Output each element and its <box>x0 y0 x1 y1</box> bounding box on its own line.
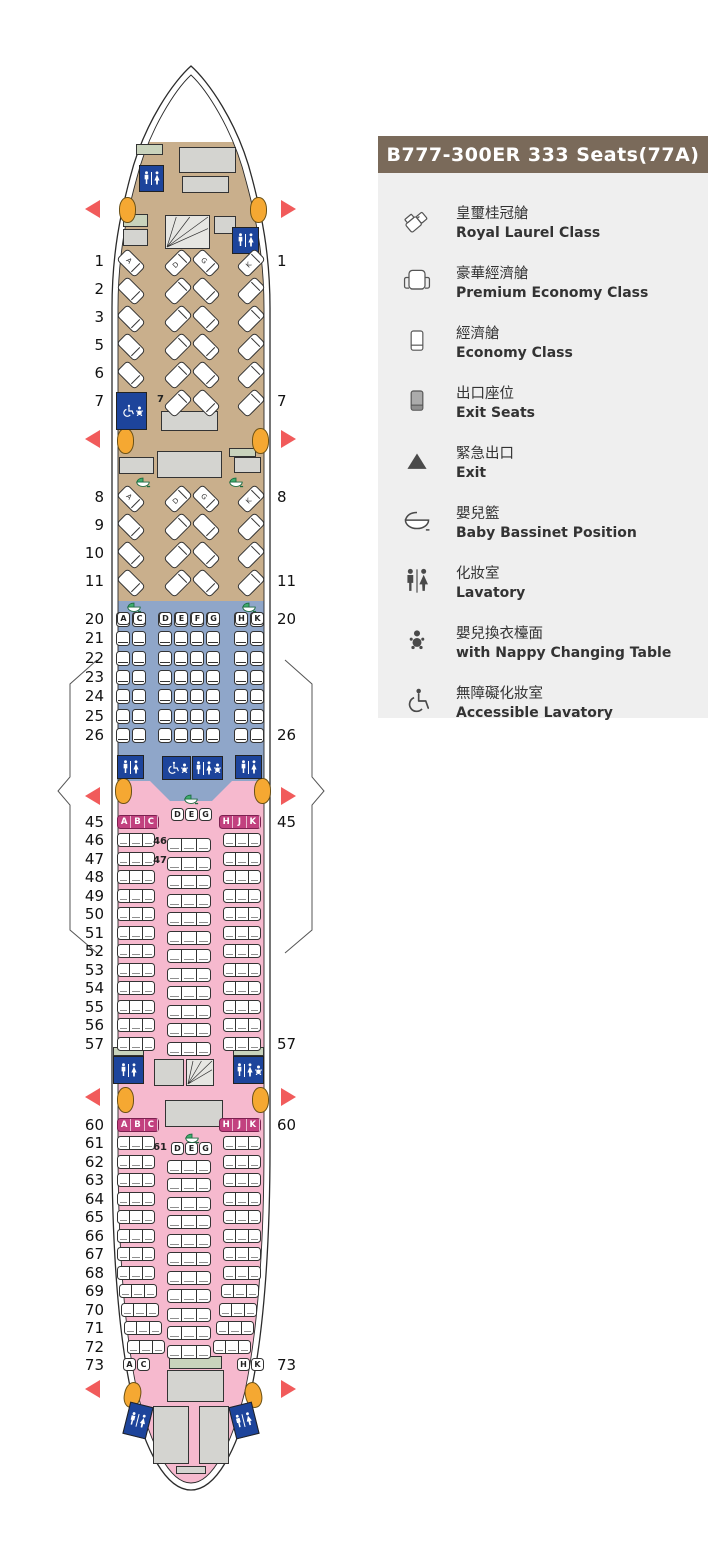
exit-door-right <box>252 1087 269 1113</box>
seat <box>234 689 248 704</box>
row-number-left: 54 <box>58 980 104 996</box>
seat <box>223 1000 261 1014</box>
galley-block <box>234 457 261 473</box>
exit-triangle-left-icon <box>85 1380 100 1398</box>
seat <box>190 631 204 646</box>
row-number-left: 22 <box>58 650 104 666</box>
seat-letter-box: F <box>191 612 204 625</box>
row-number-left: 55 <box>58 999 104 1015</box>
seat <box>213 1340 251 1354</box>
galley-block <box>119 457 154 474</box>
galley-block <box>165 1100 223 1127</box>
seat <box>132 651 146 666</box>
exit-door-right <box>254 778 271 804</box>
exit-triangle-left-icon <box>85 787 100 805</box>
seat-letter-box: K <box>251 1358 264 1371</box>
baby-bassinet-icon <box>183 791 199 810</box>
row-number-left: 20 <box>58 611 104 627</box>
row-number-left: 21 <box>58 630 104 646</box>
seat <box>116 651 130 666</box>
row-number-left: 67 <box>58 1246 104 1262</box>
lavatory-icon <box>117 755 144 779</box>
seat <box>116 689 130 704</box>
seat-letter-box: A <box>123 1358 136 1371</box>
seat <box>174 670 188 685</box>
seat <box>221 1284 259 1298</box>
stairs-icon <box>186 1059 214 1086</box>
seat-letter: D <box>171 496 180 505</box>
seat <box>206 631 220 646</box>
seat <box>167 857 211 871</box>
seat <box>206 670 220 685</box>
seat <box>223 944 261 958</box>
row-number-left: 57 <box>58 1036 104 1052</box>
baby-bassinet-icon <box>184 1130 200 1149</box>
seat-letter: K <box>244 261 253 270</box>
seat <box>223 1247 261 1261</box>
seat <box>158 631 172 646</box>
seat-map-page: B777-300ER 333 Seats(77A) 皇璽桂冠艙Royal Lau… <box>0 0 720 1550</box>
seat <box>167 1345 211 1359</box>
row-number-right: 60 <box>277 1117 323 1133</box>
exit-triangle-right-icon <box>281 200 296 218</box>
seat <box>167 894 211 908</box>
seat <box>234 631 248 646</box>
galley-block <box>157 451 222 478</box>
seat <box>117 926 155 940</box>
seat-letter: C <box>145 816 158 828</box>
seat-letter: J <box>233 816 246 828</box>
seat <box>174 631 188 646</box>
seat-letter: G <box>199 492 209 502</box>
exit-door-right <box>252 428 269 454</box>
lavatory-icon <box>233 1056 264 1084</box>
row-number-left: 10 <box>58 545 104 561</box>
seat-letter: D <box>171 260 180 269</box>
seat <box>250 709 264 724</box>
exit-triangle-right-icon <box>281 787 296 805</box>
seat <box>190 728 204 743</box>
seat <box>223 1192 261 1206</box>
seat <box>234 670 248 685</box>
row-number-right: 26 <box>277 727 323 743</box>
seat <box>219 1303 257 1317</box>
row-number-left: 60 <box>58 1117 104 1133</box>
seat-letter: A <box>118 816 131 828</box>
row-number-left: 46 <box>58 832 104 848</box>
row-number-left: 62 <box>58 1154 104 1170</box>
row-number-left: 2 <box>58 281 104 297</box>
galley-block <box>123 229 148 246</box>
seat <box>117 1037 155 1051</box>
inline-row-label: 46 <box>141 836 167 848</box>
seat-letter: K <box>244 497 253 506</box>
seat <box>167 1160 211 1174</box>
row-number-left: 52 <box>58 943 104 959</box>
seat <box>117 1266 155 1280</box>
row-number-left: 63 <box>58 1172 104 1188</box>
exit-row-seat: ABC <box>117 815 159 829</box>
exit-triangle-right-icon <box>281 430 296 448</box>
row-number-left: 45 <box>58 814 104 830</box>
seat-letter: K <box>247 1119 260 1131</box>
seat <box>190 689 204 704</box>
inline-row-label: 47 <box>141 855 167 867</box>
row-number-left: 48 <box>58 869 104 885</box>
seat-letter: C <box>145 1119 158 1131</box>
seat-letter: H <box>220 1119 233 1131</box>
row-number-right: 45 <box>277 814 323 830</box>
row-number-left: 23 <box>58 669 104 685</box>
seat-letter: B <box>131 1119 144 1131</box>
seat <box>223 1173 261 1187</box>
row-number-left: 24 <box>58 688 104 704</box>
seat <box>121 1303 159 1317</box>
seat-letter-box: E <box>175 612 188 625</box>
seat <box>190 651 204 666</box>
seat <box>167 1215 211 1229</box>
seat <box>206 709 220 724</box>
row-number-left: 26 <box>58 727 104 743</box>
wing-line-right <box>285 660 324 953</box>
seat <box>250 651 264 666</box>
seat <box>223 1155 261 1169</box>
galley-block <box>176 1466 206 1474</box>
seat <box>250 631 264 646</box>
seat <box>167 1234 211 1248</box>
seat <box>223 1210 261 1224</box>
seat <box>158 709 172 724</box>
seat <box>158 651 172 666</box>
row-number-left: 64 <box>58 1191 104 1207</box>
seat-letter-box: G <box>199 808 212 821</box>
galley-block <box>136 144 163 155</box>
seat <box>250 689 264 704</box>
seat <box>174 689 188 704</box>
exit-triangle-right-icon <box>281 1380 296 1398</box>
row-number-left: 6 <box>58 365 104 381</box>
baby-bassinet-icon <box>228 474 244 493</box>
seat <box>116 728 130 743</box>
row-number-left: 61 <box>58 1135 104 1151</box>
seat-letter-box: D <box>159 612 172 625</box>
seat <box>167 1023 211 1037</box>
seat <box>117 1173 155 1187</box>
exit-row-seat: HJK <box>219 815 261 829</box>
exit-row-seat: ABC <box>117 1118 159 1132</box>
seat-letter: A <box>124 492 133 501</box>
seat-letter: A <box>118 1119 131 1131</box>
seat <box>167 1326 211 1340</box>
seat <box>223 1266 261 1280</box>
row-number-right: 11 <box>277 573 323 589</box>
exit-row-seat: HJK <box>219 1118 261 1132</box>
seat <box>234 709 248 724</box>
seat <box>223 907 261 921</box>
seat <box>117 907 155 921</box>
seat <box>206 651 220 666</box>
row-number-left: 71 <box>58 1320 104 1336</box>
row-number-left: 66 <box>58 1228 104 1244</box>
seat-letter-box: C <box>137 1358 150 1371</box>
exit-door-left <box>115 778 132 804</box>
seat <box>167 1271 211 1285</box>
row-number-left: 8 <box>58 489 104 505</box>
inline-row-label: 61 <box>141 1142 167 1154</box>
seat <box>117 981 155 995</box>
row-number-right: 20 <box>277 611 323 627</box>
seat <box>234 651 248 666</box>
row-number-left: 70 <box>58 1302 104 1318</box>
seat <box>132 670 146 685</box>
baby-bassinet-icon <box>135 474 151 493</box>
seat <box>223 963 261 977</box>
seat <box>167 1289 211 1303</box>
seat-letter: K <box>247 816 260 828</box>
seat <box>167 1178 211 1192</box>
galley-block <box>167 1370 224 1402</box>
seat <box>158 689 172 704</box>
seat <box>117 1247 155 1261</box>
galley-block <box>153 1406 189 1464</box>
seat-letter-box: G <box>199 1142 212 1155</box>
seat <box>174 651 188 666</box>
galley-block <box>154 1059 184 1086</box>
seat <box>223 926 261 940</box>
row-number-left: 50 <box>58 906 104 922</box>
seat-letter-box: H <box>237 1358 250 1371</box>
galley-block <box>229 448 256 457</box>
exit-door-left <box>117 428 134 454</box>
row-number-left: 56 <box>58 1017 104 1033</box>
exit-triangle-left-icon <box>85 1088 100 1106</box>
row-number-left: 25 <box>58 708 104 724</box>
lavatory-icon <box>192 756 223 780</box>
seat <box>132 689 146 704</box>
lavatory-icon <box>113 1056 144 1084</box>
baby-bassinet-icon <box>126 599 142 618</box>
seat <box>167 968 211 982</box>
fuselage-outline <box>0 0 720 1550</box>
seat <box>223 870 261 884</box>
baby-bassinet-icon <box>241 599 257 618</box>
row-number-left: 65 <box>58 1209 104 1225</box>
seat <box>223 981 261 995</box>
seat <box>116 709 130 724</box>
exit-triangle-left-icon <box>85 200 100 218</box>
seat <box>124 1321 162 1335</box>
seat <box>116 631 130 646</box>
seat <box>167 1308 211 1322</box>
seat <box>117 889 155 903</box>
stairs-icon <box>165 215 210 249</box>
lavatory-icon <box>139 165 164 192</box>
seat <box>158 728 172 743</box>
seat <box>117 944 155 958</box>
seat <box>117 1018 155 1032</box>
seat <box>167 875 211 889</box>
seat <box>127 1340 165 1354</box>
seat <box>167 912 211 926</box>
exit-door-right <box>250 197 267 223</box>
seat <box>167 1252 211 1266</box>
seat <box>216 1321 254 1335</box>
seat <box>174 709 188 724</box>
seat-letter-box: G <box>207 612 220 625</box>
row-number-left: 51 <box>58 925 104 941</box>
seat <box>117 870 155 884</box>
row-number-left: 7 <box>58 393 104 409</box>
accessible-lavatory-icon <box>162 756 191 780</box>
seat <box>117 1229 155 1243</box>
seat <box>117 1210 155 1224</box>
seat <box>174 728 188 743</box>
row-7-inline-label: 7 <box>138 394 164 406</box>
seat <box>234 728 248 743</box>
seat <box>223 1136 261 1150</box>
lavatory-icon <box>235 755 262 779</box>
seat <box>190 670 204 685</box>
galley-block <box>182 176 229 193</box>
seat-letter: J <box>233 1119 246 1131</box>
seat <box>167 1005 211 1019</box>
row-number-left: 49 <box>58 888 104 904</box>
seat <box>167 1197 211 1211</box>
seat-letter: A <box>124 256 133 265</box>
seat <box>167 931 211 945</box>
row-number-left: 73 <box>58 1357 104 1373</box>
row-number-left: 5 <box>58 337 104 353</box>
seat-letter: G <box>199 256 209 266</box>
row-number-right: 57 <box>277 1036 323 1052</box>
row-number-left: 53 <box>58 962 104 978</box>
seat <box>250 728 264 743</box>
row-number-right: 7 <box>277 393 323 409</box>
seat <box>223 852 261 866</box>
exit-door-left <box>119 197 136 223</box>
seat <box>223 1018 261 1032</box>
seat <box>250 670 264 685</box>
seat <box>223 889 261 903</box>
row-number-left: 9 <box>58 517 104 533</box>
galley-block <box>199 1406 229 1464</box>
seat <box>117 1155 155 1169</box>
row-number-right: 73 <box>277 1357 323 1373</box>
seat-letter: B <box>131 816 144 828</box>
exit-triangle-right-icon <box>281 1088 296 1106</box>
exit-triangle-left-icon <box>85 430 100 448</box>
seat <box>167 1042 211 1056</box>
seat <box>132 728 146 743</box>
seat <box>119 1284 157 1298</box>
seat <box>206 728 220 743</box>
seat <box>117 963 155 977</box>
row-number-right: 1 <box>277 253 323 269</box>
seat <box>223 1037 261 1051</box>
seat <box>117 1192 155 1206</box>
row-number-left: 11 <box>58 573 104 589</box>
seat <box>206 689 220 704</box>
seat <box>223 1229 261 1243</box>
seat-letter: H <box>220 816 233 828</box>
seat <box>167 838 211 852</box>
galley-block <box>179 147 236 173</box>
row-number-left: 47 <box>58 851 104 867</box>
seat <box>132 709 146 724</box>
seat <box>158 670 172 685</box>
seat <box>117 1000 155 1014</box>
seat <box>132 631 146 646</box>
seat <box>116 670 130 685</box>
seat <box>223 833 261 847</box>
row-number-left: 1 <box>58 253 104 269</box>
seat-letter-box: D <box>171 1142 184 1155</box>
seat <box>190 709 204 724</box>
row-number-left: 69 <box>58 1283 104 1299</box>
row-number-right: 8 <box>277 489 323 505</box>
row-number-left: 68 <box>58 1265 104 1281</box>
row-number-left: 3 <box>58 309 104 325</box>
seat <box>167 949 211 963</box>
exit-door-left <box>117 1087 134 1113</box>
row-number-left: 72 <box>58 1339 104 1355</box>
seat <box>167 986 211 1000</box>
